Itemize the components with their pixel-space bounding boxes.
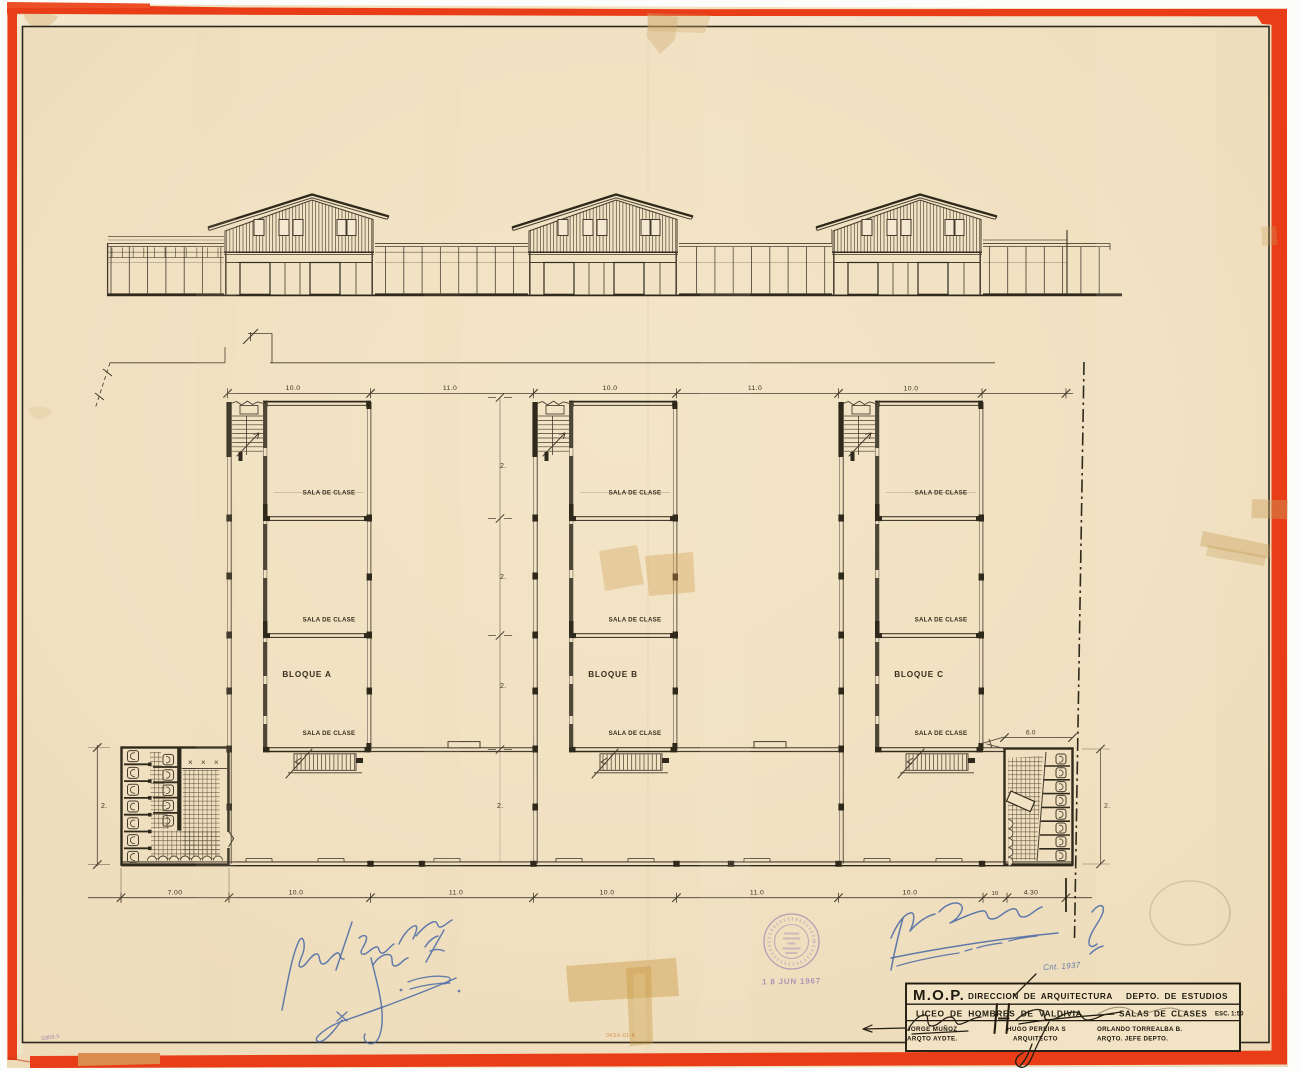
svg-text:M.O.P.: M.O.P. <box>913 987 965 1004</box>
svg-text:ESC. 1:50: ESC. 1:50 <box>1215 1012 1244 1018</box>
svg-text:ARQTO AYDTE.: ARQTO AYDTE. <box>907 1036 958 1043</box>
svg-text:1 8 JUN 1967: 1 8 JUN 1967 <box>762 976 821 986</box>
svg-text:ARQUITECTO: ARQUITECTO <box>1013 1036 1058 1043</box>
svg-text:0K5X-01-K: 0K5X-01-K <box>606 1033 636 1039</box>
svg-text:DEPTO. DE ESTUDIOS: DEPTO. DE ESTUDIOS <box>1126 992 1228 1001</box>
svg-text:ARQTO. JEFE DEPTO.: ARQTO. JEFE DEPTO. <box>1097 1036 1168 1043</box>
svg-text:ORLANDO TORREALBA B.: ORLANDO TORREALBA B. <box>1097 1026 1182 1033</box>
svg-text:HUGO PEREIRA S: HUGO PEREIRA S <box>1007 1026 1066 1033</box>
svg-text:DIRECCION DE ARQUITECTURA: DIRECCION DE ARQUITECTURA <box>968 992 1113 1001</box>
